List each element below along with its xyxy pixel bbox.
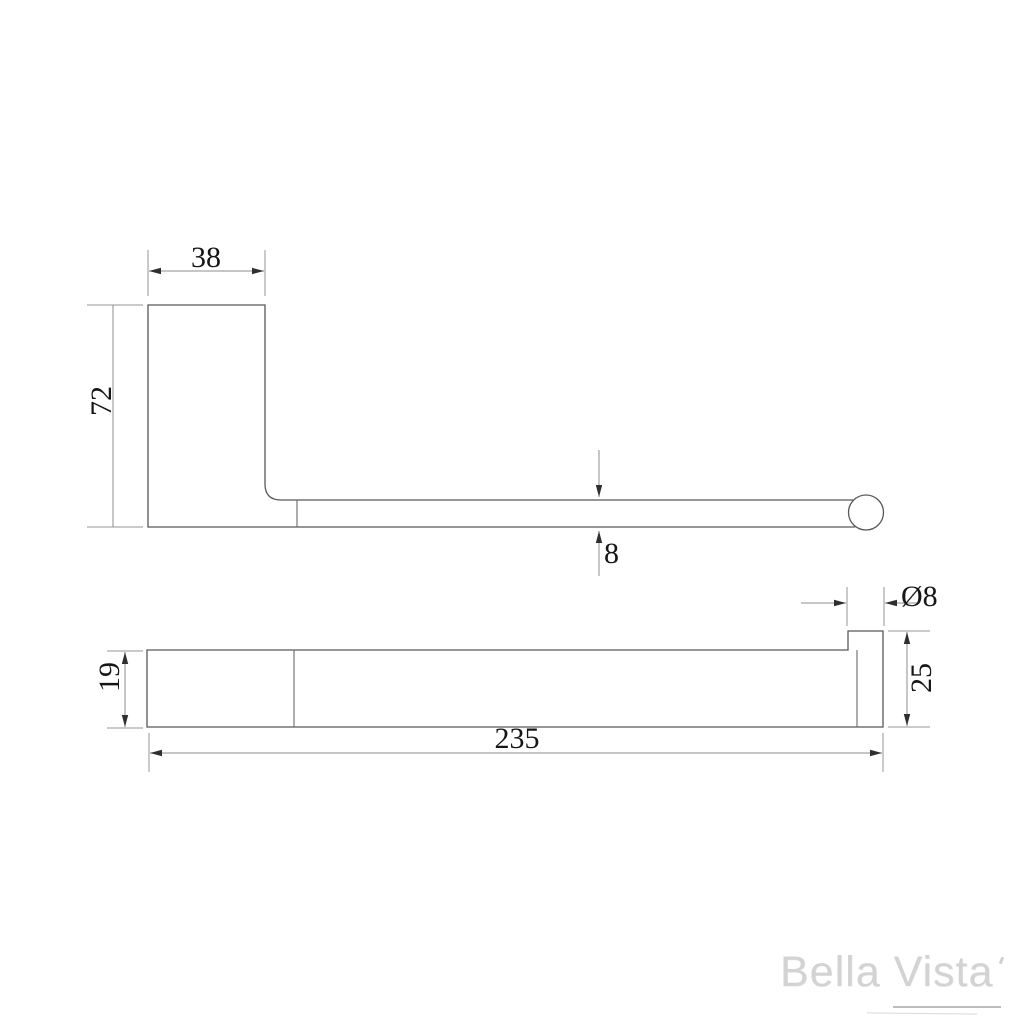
dimension-plate-depth: 19	[93, 651, 143, 728]
side-profile-outline	[148, 305, 855, 527]
drawing-svg: 38 72 8	[0, 0, 1024, 1024]
dimension-label-235: 235	[495, 722, 540, 755]
technical-drawing-page: 38 72 8	[0, 0, 1024, 1024]
dimension-label-25: 25	[905, 663, 938, 693]
dimension-label-38: 38	[191, 241, 221, 274]
brand-logo: Bella Vista	[780, 948, 1020, 997]
dimension-rail-thickness: 8	[599, 450, 619, 576]
dimension-label-19: 19	[93, 662, 126, 692]
dimension-label-72: 72	[85, 386, 118, 416]
view-side-profile: 38 72 8	[85, 241, 884, 576]
rail-end-circle	[849, 495, 884, 530]
dimension-bracket-width: 38	[148, 241, 265, 296]
view-top-plan: 19 235 Ø8 25	[93, 580, 938, 772]
dimension-overall-length: 235	[149, 722, 883, 772]
dimension-bracket-height: 72	[85, 305, 143, 527]
dimension-label-diameter-8: Ø8	[901, 580, 938, 613]
dimension-rail-diameter: Ø8	[801, 580, 938, 626]
logo-underline	[893, 1006, 1001, 1008]
dimension-label-8: 8	[604, 537, 619, 570]
dimension-end-cap-depth: 25	[888, 631, 938, 727]
top-plan-outline	[147, 631, 883, 727]
